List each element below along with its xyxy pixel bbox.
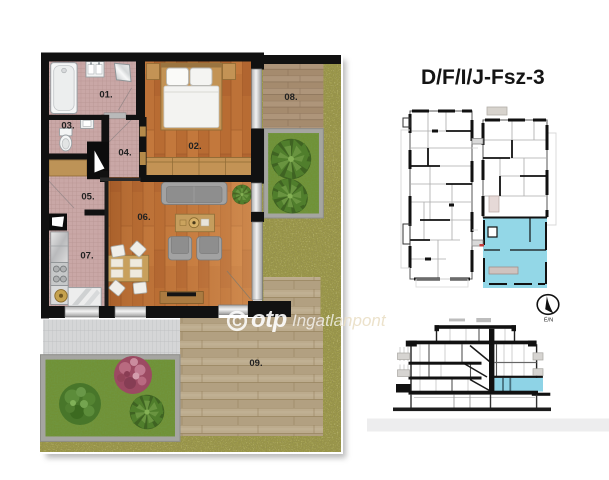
svg-text:07.: 07. (80, 251, 93, 262)
svg-text:D/F/I/J-Fsz-3: D/F/I/J-Fsz-3 (421, 66, 545, 89)
svg-text:06.: 06. (137, 212, 150, 223)
svg-text:C: C (232, 314, 242, 329)
svg-text:É/N: É/N (544, 317, 553, 324)
svg-text:02.: 02. (188, 141, 201, 152)
svg-text:09.: 09. (249, 358, 262, 369)
svg-text:08.: 08. (284, 92, 297, 103)
svg-text:03.: 03. (61, 121, 74, 132)
svg-text:04.: 04. (118, 148, 131, 159)
svg-text:01.: 01. (99, 90, 112, 101)
svg-text:otp: otp (251, 306, 287, 333)
svg-text:05.: 05. (81, 192, 94, 203)
